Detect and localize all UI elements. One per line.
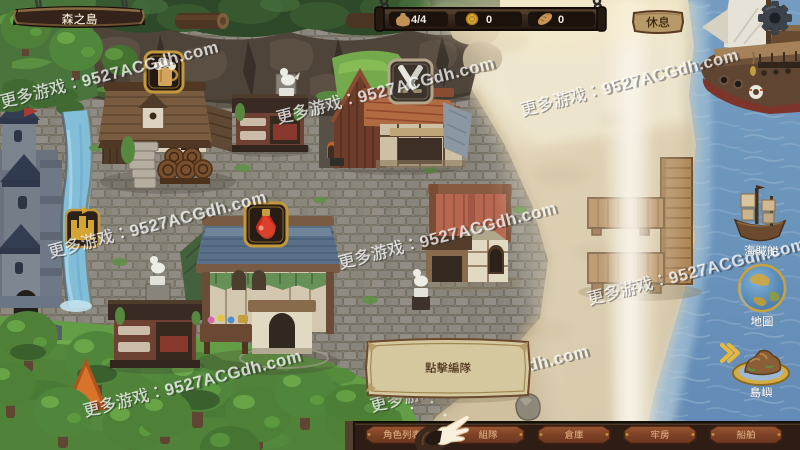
- svg-text:0: 0: [558, 14, 564, 26]
- svg-text:0: 0: [486, 14, 492, 26]
- svg-text:4/4: 4/4: [411, 14, 427, 26]
